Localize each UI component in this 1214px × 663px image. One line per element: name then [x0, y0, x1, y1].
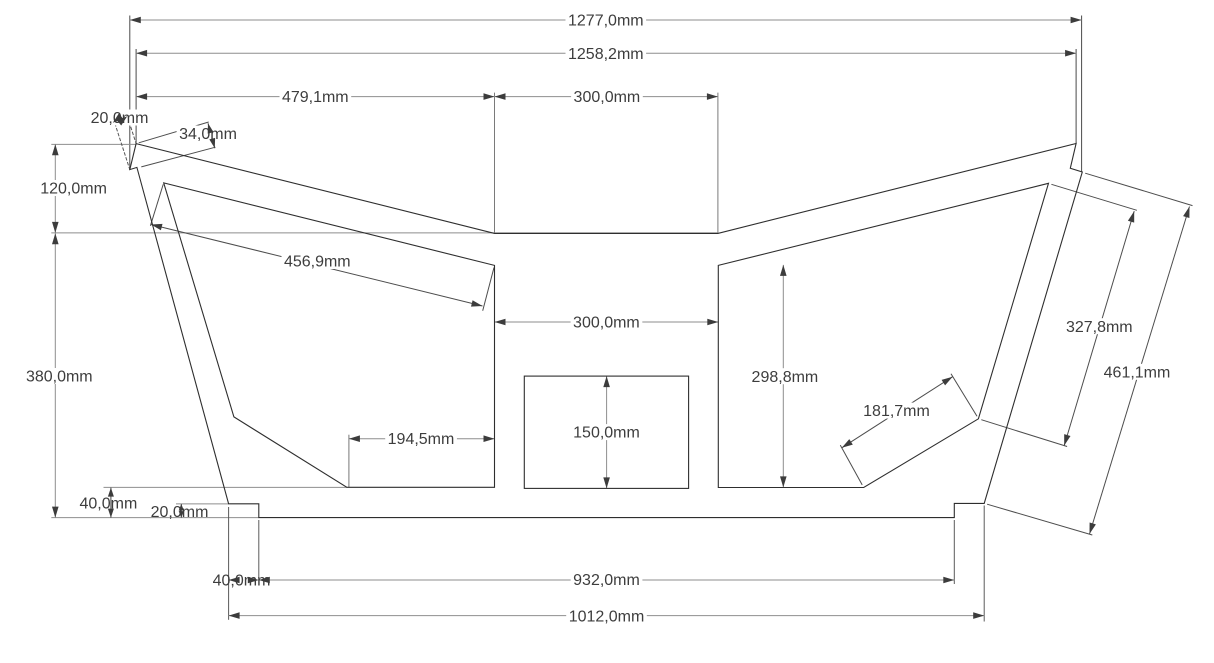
svg-text:40,0mm: 40,0mm [213, 573, 271, 590]
svg-text:479,1mm: 479,1mm [282, 89, 349, 106]
svg-text:380,0mm: 380,0mm [26, 369, 93, 386]
svg-text:456,9mm: 456,9mm [284, 254, 351, 271]
svg-text:1258,2mm: 1258,2mm [568, 46, 644, 63]
svg-text:298,8mm: 298,8mm [752, 369, 819, 386]
svg-text:120,0mm: 120,0mm [40, 181, 107, 198]
svg-text:1012,0mm: 1012,0mm [569, 608, 645, 625]
svg-text:1277,0mm: 1277,0mm [568, 13, 644, 30]
svg-text:932,0mm: 932,0mm [573, 572, 640, 589]
svg-text:150,0mm: 150,0mm [573, 425, 640, 442]
svg-text:181,7mm: 181,7mm [863, 403, 930, 420]
svg-text:300,0mm: 300,0mm [573, 315, 640, 332]
svg-text:194,5mm: 194,5mm [388, 431, 455, 448]
svg-text:300,0mm: 300,0mm [574, 89, 641, 106]
svg-text:461,1mm: 461,1mm [1104, 364, 1171, 381]
svg-text:327,8mm: 327,8mm [1066, 319, 1133, 336]
